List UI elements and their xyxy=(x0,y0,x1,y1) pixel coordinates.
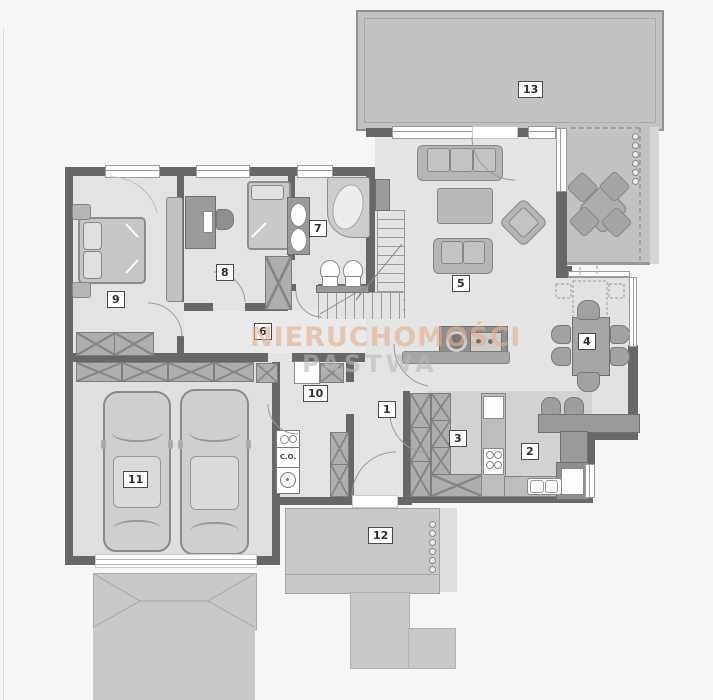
room-label-7: 7 xyxy=(309,220,327,237)
dining-chair-right2 xyxy=(610,347,630,366)
desk-chair xyxy=(216,209,234,230)
terrace-13-ext-edge xyxy=(650,127,659,264)
car-2 xyxy=(180,389,249,555)
bed-pillow-1 xyxy=(83,222,102,250)
car-1-rear-window xyxy=(113,520,161,541)
room-label-5: 5 xyxy=(452,275,470,292)
washing-machine xyxy=(276,467,300,494)
car-2-roof xyxy=(190,456,239,510)
window-living-top-1 xyxy=(392,126,474,139)
terrace-dot-2 xyxy=(632,142,639,149)
nightstand-bottom xyxy=(72,282,91,298)
entrance-door-gap xyxy=(352,495,398,508)
car-1-mirror-right xyxy=(168,440,173,449)
sofa-3seat-cushion3 xyxy=(473,148,496,172)
car-2-mirror-left xyxy=(178,440,183,449)
terrace-dot-1 xyxy=(632,133,639,140)
porch-dot-1 xyxy=(429,521,436,528)
pantry-shelf-bottom xyxy=(431,474,483,497)
kitchen-sink-basin-2 xyxy=(545,480,558,493)
room-label-2: 2 xyxy=(521,443,539,460)
car-1-windshield xyxy=(111,418,163,442)
window-kitchen-right xyxy=(585,464,595,498)
stairs-lower-flight xyxy=(318,292,403,319)
stove-burner-1 xyxy=(486,451,494,459)
dining-chair-bottom xyxy=(577,372,600,392)
dining-chair-right1 xyxy=(610,325,630,344)
utility-sink-basin-1 xyxy=(280,435,289,444)
car-2-rear-window xyxy=(190,522,239,543)
window-living-right xyxy=(556,128,567,192)
sofa-3seat-cushion1 xyxy=(427,148,450,172)
dining-chair-top xyxy=(577,300,600,320)
utility-sink-basin-2 xyxy=(289,435,297,443)
garage-storage-cell4 xyxy=(214,362,254,382)
window-dining-right xyxy=(629,277,637,347)
window-room8 xyxy=(196,165,250,178)
nightstand-top xyxy=(72,204,91,220)
sofa-3seat-cushion2 xyxy=(450,148,473,172)
room-label-12: 12 xyxy=(368,527,393,544)
bed-pillow-2 xyxy=(83,251,102,279)
stove-burner-2 xyxy=(494,451,502,459)
window-living-top-2 xyxy=(528,126,556,139)
sofa-2seat-cushion1 xyxy=(441,241,463,264)
floor-plan: C.O. xyxy=(0,0,713,700)
entry-porch-12 xyxy=(285,508,440,576)
garage-storage-cell1 xyxy=(76,362,122,382)
bar-stool-2 xyxy=(564,397,584,415)
room-label-8: 8 xyxy=(216,264,234,281)
room-label-9: 9 xyxy=(107,291,125,308)
room-label-10: 10 xyxy=(303,385,328,402)
watermark-line1: NIERUCHOMOŚCI xyxy=(250,322,521,353)
desk-monitor xyxy=(203,211,213,233)
wall-hall-pantry xyxy=(403,391,410,497)
pantry-shelf-a2 xyxy=(410,427,431,462)
wall-room8-bottom-a xyxy=(184,303,213,311)
kitchen-sink-top xyxy=(483,396,504,419)
window-dining-top xyxy=(568,271,630,278)
washer-dot xyxy=(286,478,289,481)
boiler-label: C.O. xyxy=(280,453,296,461)
driveway-lower xyxy=(93,628,255,700)
single-bed-pillow xyxy=(251,185,284,200)
walkway-side-pad xyxy=(408,628,456,669)
toilet-tank xyxy=(322,276,338,287)
porch-dot-6 xyxy=(429,566,436,573)
bar-counter-top xyxy=(538,414,640,433)
pantry-shelf-b1 xyxy=(431,393,451,421)
coffee-table xyxy=(437,188,493,224)
porch-dot-5 xyxy=(429,557,436,564)
bar-stool-1 xyxy=(541,397,561,415)
porch-dot-3 xyxy=(429,539,436,546)
fridge-inner xyxy=(561,468,584,495)
entry-porch-step xyxy=(438,508,457,592)
terrace-13-ext-bottom-line xyxy=(565,262,650,265)
porch-dot-2 xyxy=(429,530,436,537)
utility-sink xyxy=(276,430,300,448)
pantry-shelf-a3 xyxy=(410,461,431,497)
room10-wardrobe-b xyxy=(330,464,349,497)
pantry-shelf-b3 xyxy=(431,447,451,475)
chimney-block xyxy=(375,179,390,211)
wall-living-right xyxy=(556,190,567,278)
garage-door-gap xyxy=(95,554,257,568)
wall-hall-porch-a xyxy=(280,497,352,505)
terrace-dot-3 xyxy=(632,151,639,158)
entry-porch-12-lower-band xyxy=(285,574,440,594)
bidet-tank xyxy=(345,276,361,287)
wardrobe-room9-cell2 xyxy=(114,332,154,356)
window-room9 xyxy=(105,165,160,178)
room10-cabinet-left xyxy=(256,363,278,383)
car-2-mirror-right xyxy=(246,440,251,449)
pantry-shelf-a1 xyxy=(410,393,431,428)
terrace-13-inner-line xyxy=(364,18,656,123)
kitchen-sink-basin-1 xyxy=(530,480,544,493)
tall-wardrobe-room9 xyxy=(166,197,183,302)
wall-wing-left xyxy=(65,167,73,565)
wardrobe-room9-cell1 xyxy=(76,332,116,356)
room-label-4: 4 xyxy=(578,333,596,350)
terrace-dot-6 xyxy=(632,178,639,185)
room-label-1: 1 xyxy=(378,401,396,418)
driveway xyxy=(93,573,257,630)
car-2-windshield xyxy=(188,417,241,442)
terrace-door-gap xyxy=(472,126,518,139)
room-label-3: 3 xyxy=(449,430,467,447)
room10-wardrobe-a xyxy=(330,432,349,465)
garage-storage-cell3 xyxy=(168,362,214,382)
boiler-unit: C.O. xyxy=(276,447,300,468)
stove-burner-4 xyxy=(494,461,502,469)
sofa-2seat-cushion2 xyxy=(463,241,485,264)
stove-burner-3 xyxy=(486,461,494,469)
bath-sink-2 xyxy=(290,228,307,252)
garage-storage-cell2 xyxy=(122,362,168,382)
room-label-11: 11 xyxy=(123,471,148,488)
bar-counter-side xyxy=(560,431,588,466)
dining-chair-left1 xyxy=(551,325,571,344)
window-bath xyxy=(297,165,333,178)
wardrobe-room8 xyxy=(265,256,292,310)
terrace-dot-4 xyxy=(632,160,639,167)
watermark-line2: PASTWA xyxy=(302,350,438,378)
car-1-mirror-left xyxy=(101,440,106,449)
porch-dot-4 xyxy=(429,548,436,555)
bath-sink-1 xyxy=(290,203,307,227)
dining-chair-left2 xyxy=(551,347,571,366)
walkway xyxy=(350,592,410,669)
page-edge-line xyxy=(3,28,4,700)
room-label-13: 13 xyxy=(518,81,543,98)
terrace-dot-5 xyxy=(632,169,639,176)
pantry-shelf-b2 xyxy=(431,420,451,448)
